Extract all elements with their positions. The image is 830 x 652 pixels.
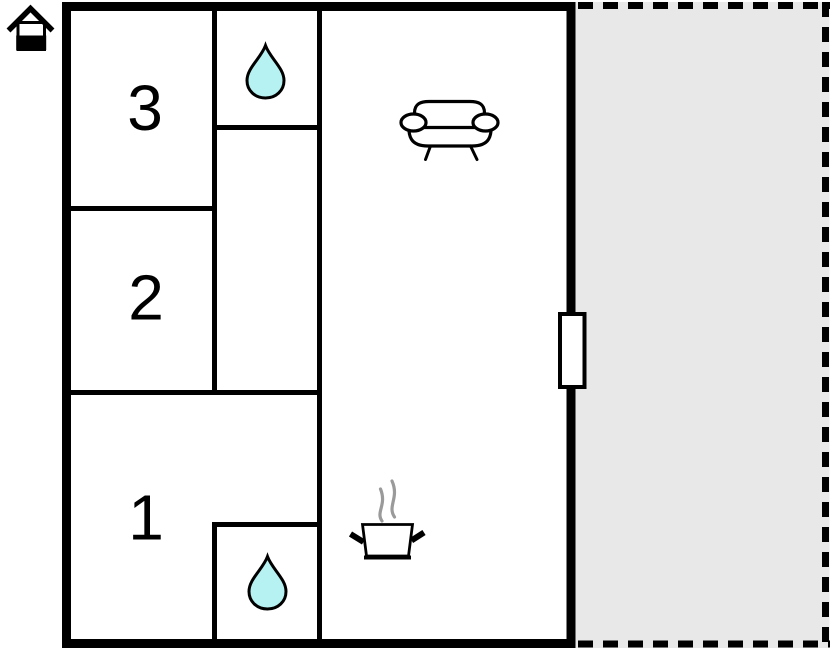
house-icon-base xyxy=(16,36,46,51)
house-icon xyxy=(9,9,53,51)
floorplan-drawing: 3 2 1 xyxy=(0,0,830,652)
floorplan-canvas: 3 2 1 xyxy=(0,0,830,652)
sofa-icon xyxy=(401,102,498,160)
steam-line-right xyxy=(392,481,395,517)
water-drop-icon xyxy=(249,557,286,610)
cooking-pot-steam-icon xyxy=(351,481,425,558)
pot-body xyxy=(363,525,413,557)
terrace-area xyxy=(576,2,830,648)
steam-line-left xyxy=(380,489,383,521)
steam-lines xyxy=(380,481,395,521)
interior-walls xyxy=(62,2,322,646)
room-2-label: 2 xyxy=(128,262,164,334)
sofa-leg-left xyxy=(426,146,431,160)
door-symbol xyxy=(560,314,585,387)
water-drop-icon xyxy=(247,46,284,99)
sofa-armrest-right xyxy=(473,114,498,131)
sofa-armrest-left xyxy=(401,114,426,131)
sofa-leg-right xyxy=(471,146,478,160)
pot-handle-left xyxy=(351,534,364,542)
pot-handle-right xyxy=(412,533,425,541)
terrace-fill xyxy=(576,2,830,648)
room-1-label: 1 xyxy=(128,482,164,554)
room-3-label: 3 xyxy=(127,72,163,144)
